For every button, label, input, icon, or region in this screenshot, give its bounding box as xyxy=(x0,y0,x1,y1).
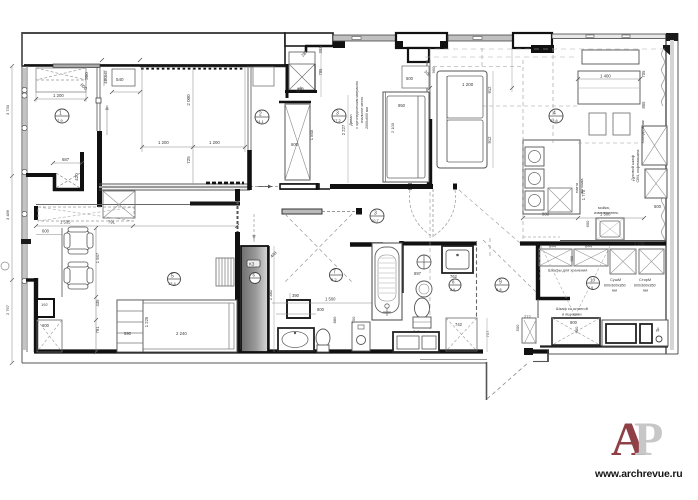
svg-text:вытяжка: вытяжка xyxy=(580,178,584,194)
svg-text:2 240: 2 240 xyxy=(176,331,187,336)
svg-text:687: 687 xyxy=(62,157,70,162)
svg-text:6,8: 6,8 xyxy=(496,287,502,292)
svg-text:960: 960 xyxy=(431,66,436,73)
svg-text:2 382: 2 382 xyxy=(268,289,273,300)
svg-text:и ящиками: и ящиками xyxy=(562,312,582,317)
svg-text:СтирМ: СтирМ xyxy=(639,277,651,282)
svg-text:3 730: 3 730 xyxy=(5,104,10,115)
svg-text:1 840: 1 840 xyxy=(309,129,314,140)
svg-text:2: 2 xyxy=(259,112,262,118)
svg-text:725: 725 xyxy=(186,156,191,164)
svg-text:600: 600 xyxy=(574,326,579,333)
svg-text:Шкафы для хранения: Шкафы для хранения xyxy=(548,268,587,273)
svg-text:9: 9 xyxy=(499,280,502,286)
svg-text:32,6: 32,6 xyxy=(550,118,559,123)
svg-text:400: 400 xyxy=(570,256,574,262)
svg-text:912: 912 xyxy=(487,86,492,94)
svg-text:7: 7 xyxy=(333,270,336,276)
svg-text:10: 10 xyxy=(590,278,596,283)
svg-text:1: 1 xyxy=(59,111,62,117)
svg-text:988: 988 xyxy=(542,212,550,217)
svg-text:800: 800 xyxy=(317,307,325,312)
svg-text:500: 500 xyxy=(515,324,520,331)
svg-text:757: 757 xyxy=(485,330,490,337)
svg-text:600: 600 xyxy=(585,220,590,227)
svg-text:7,9: 7,9 xyxy=(57,118,63,123)
svg-text:плита: плита xyxy=(575,182,579,193)
svg-text:600х600х850: 600х600х850 xyxy=(604,284,626,288)
svg-text:897: 897 xyxy=(414,271,422,276)
svg-text:791: 791 xyxy=(108,220,116,225)
svg-text:14,1: 14,1 xyxy=(256,119,265,124)
svg-text:www.archrevue.ru: www.archrevue.ru xyxy=(594,468,682,480)
svg-text:3: 3 xyxy=(374,211,377,217)
svg-text:912: 912 xyxy=(487,136,492,144)
svg-text:мм: мм xyxy=(643,289,648,293)
svg-text:спальное место: спальное место xyxy=(360,97,364,124)
svg-text:2000х600 мм: 2000х600 мм xyxy=(365,107,369,129)
svg-text:мм: мм xyxy=(612,289,617,293)
svg-text:435: 435 xyxy=(95,299,100,307)
svg-text:3 486: 3 486 xyxy=(5,209,10,220)
svg-text:13,4: 13,4 xyxy=(168,281,177,286)
svg-text:Шкаф со штангой: Шкаф со штангой xyxy=(556,306,588,311)
svg-text:1 200: 1 200 xyxy=(53,93,64,98)
svg-text:705: 705 xyxy=(641,70,646,78)
svg-text:742: 742 xyxy=(455,322,463,327)
svg-text:1 500: 1 500 xyxy=(325,297,336,302)
svg-text:1 225: 1 225 xyxy=(144,316,149,327)
svg-text:600: 600 xyxy=(406,76,414,81)
svg-text:950: 950 xyxy=(398,103,406,108)
svg-text:2,9: 2,9 xyxy=(450,288,455,292)
svg-text:КЗ: КЗ xyxy=(249,262,255,267)
svg-text:Холодильник: Холодильник xyxy=(641,120,645,144)
svg-text:с ортопедическим матрасом: с ортопедическим матрасом xyxy=(355,81,359,129)
svg-text:17,2: 17,2 xyxy=(333,118,342,123)
svg-text:192: 192 xyxy=(41,302,48,307)
svg-text:791: 791 xyxy=(95,326,100,334)
svg-text:600х600х850: 600х600х850 xyxy=(634,284,656,288)
svg-text:2 767: 2 767 xyxy=(5,304,10,315)
svg-text:420: 420 xyxy=(74,173,79,181)
svg-text:750: 750 xyxy=(351,316,356,323)
svg-text:900: 900 xyxy=(570,320,578,325)
svg-text:2 100: 2 100 xyxy=(390,122,395,133)
svg-text:880: 880 xyxy=(332,316,337,323)
svg-text:Р: Р xyxy=(634,413,663,466)
svg-text:590: 590 xyxy=(124,331,132,336)
svg-text:1 535: 1 535 xyxy=(60,220,71,225)
svg-text:Духовой шкаф: Духовой шкаф xyxy=(631,155,635,181)
svg-text:390: 390 xyxy=(292,293,300,298)
svg-text:Диван: Диван xyxy=(348,114,353,125)
svg-text:4: 4 xyxy=(553,111,556,117)
svg-text:445: 445 xyxy=(103,70,108,77)
svg-text:844: 844 xyxy=(585,244,593,249)
svg-text:300: 300 xyxy=(84,72,89,80)
svg-text:1 200: 1 200 xyxy=(158,140,169,145)
svg-text:1 270: 1 270 xyxy=(634,242,645,247)
svg-text:855: 855 xyxy=(641,101,646,109)
svg-text:5,2: 5,2 xyxy=(331,277,337,282)
svg-text:мойка,: мойка, xyxy=(598,206,610,210)
svg-text:1 947: 1 947 xyxy=(95,252,100,263)
svg-text:2 000: 2 000 xyxy=(186,94,191,106)
svg-text:измельчитель: измельчитель xyxy=(594,211,618,215)
svg-text:5: 5 xyxy=(171,274,174,280)
svg-text:844: 844 xyxy=(549,244,557,249)
svg-text:СВЧ, кофемашина: СВЧ, кофемашина xyxy=(636,149,640,183)
svg-text:2 227: 2 227 xyxy=(341,124,346,135)
svg-text:600: 600 xyxy=(654,204,662,209)
svg-text:272: 272 xyxy=(524,314,531,319)
svg-text:10,7: 10,7 xyxy=(371,218,380,223)
svg-text:600: 600 xyxy=(42,229,50,234)
svg-text:393: 393 xyxy=(318,46,323,54)
svg-text:540: 540 xyxy=(116,77,124,82)
svg-text:1 400: 1 400 xyxy=(600,74,611,79)
svg-text:1 200: 1 200 xyxy=(462,82,474,87)
svg-text:СушМ: СушМ xyxy=(610,277,621,282)
svg-text:1 200: 1 200 xyxy=(209,140,220,145)
svg-text:785: 785 xyxy=(318,68,323,76)
svg-text:600: 600 xyxy=(42,323,50,328)
svg-text:600: 600 xyxy=(291,142,299,147)
svg-text:3: 3 xyxy=(336,111,339,117)
svg-text:762: 762 xyxy=(450,274,458,279)
